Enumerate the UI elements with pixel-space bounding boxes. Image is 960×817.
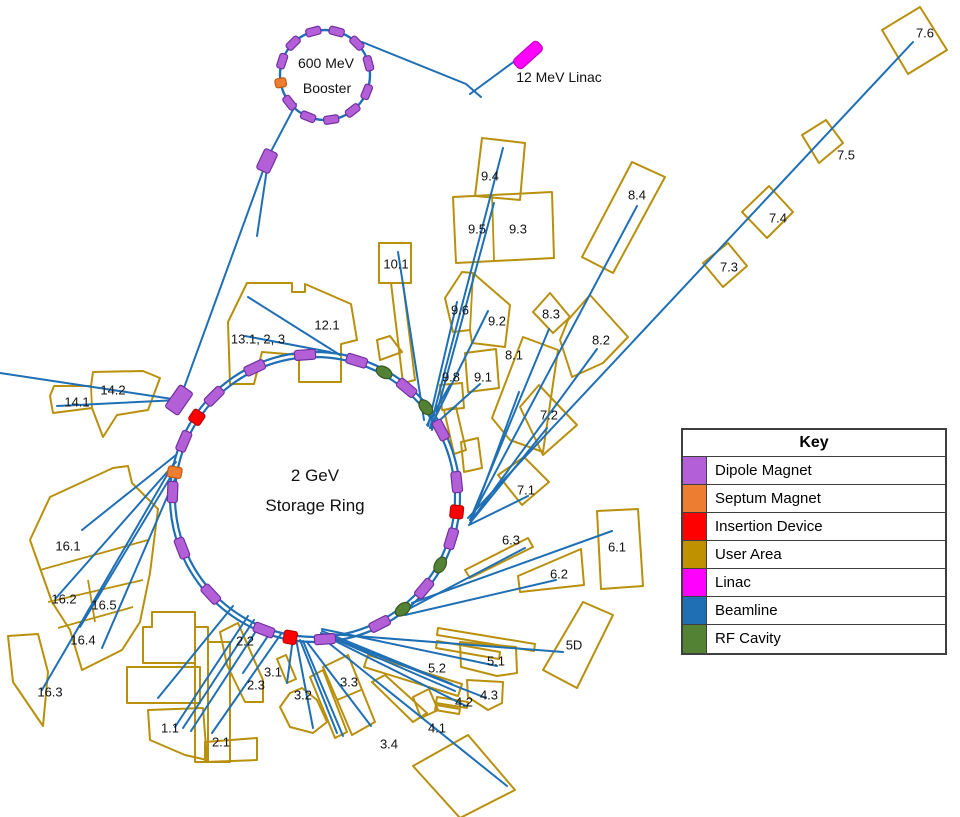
dipole-magnet (345, 353, 368, 369)
insertion-device (283, 630, 298, 645)
beamline-22 (320, 636, 507, 786)
beamline-2 (181, 104, 296, 396)
label-9-6: 9.6 (451, 303, 469, 318)
label-13-1-2-3: 13.1, 2, 3 (231, 332, 285, 347)
label-8-4: 8.4 (628, 188, 646, 203)
legend-row-linac: Linac (683, 569, 945, 597)
label-2-gev: 2 GeV (291, 466, 340, 485)
booster-dipole-magnet (285, 35, 301, 51)
legend-title: Key (683, 430, 945, 457)
dipole-magnet (256, 148, 278, 174)
legend-label: Dipole Magnet (707, 457, 812, 484)
dipole-magnet (174, 536, 191, 559)
rf-cavity (393, 600, 413, 619)
legend-label: User Area (707, 541, 782, 568)
legend-label: Insertion Device (707, 513, 823, 540)
label-3-4: 3.4 (380, 737, 398, 752)
linac (512, 40, 544, 70)
label-5-1: 5.1 (487, 654, 505, 669)
label-16-2: 16.2 (51, 592, 76, 607)
label-2-2: 2.2 (236, 634, 254, 649)
building-1-1-mid (127, 667, 200, 703)
booster-septum-magnet (274, 77, 286, 88)
dipole-magnet (451, 471, 463, 493)
legend: Key Dipole MagnetSeptum MagnetInsertion … (681, 428, 947, 655)
label-6-1: 6.1 (608, 540, 626, 555)
synchrotron-facility-diagram: 7.67.57.47.38.48.38.28.19.49.59.39.69.29… (0, 0, 960, 817)
label-storage-ring: Storage Ring (265, 496, 364, 515)
building-1-1-top (143, 612, 195, 663)
legend-rows: Dipole MagnetSeptum MagnetInsertion Devi… (683, 457, 945, 653)
legend-row-rf-cavity: RF Cavity (683, 625, 945, 653)
label-6-2: 6.2 (550, 567, 568, 582)
label-16-3: 16.3 (37, 685, 62, 700)
septum-magnet (167, 466, 183, 479)
booster-dipole-magnet (276, 53, 288, 70)
beamline-0 (362, 42, 481, 97)
building-8-4 (582, 162, 665, 273)
booster-dipole-magnet (349, 35, 365, 51)
label-16-4: 16.4 (70, 633, 95, 648)
dipole-magnet (167, 481, 178, 502)
label-8-3: 8.3 (542, 307, 560, 322)
label-9-2: 9.2 (488, 314, 506, 329)
legend-row-dipole-magnet: Dipole Magnet (683, 457, 945, 485)
beamline-7 (56, 462, 176, 598)
label-10-1: 10.1 (383, 257, 408, 272)
dipole-magnet (314, 633, 336, 644)
legend-label: Septum Magnet (707, 485, 821, 512)
label-3-2: 3.2 (294, 688, 312, 703)
dipole-magnet (294, 349, 316, 360)
label-7-6: 7.6 (916, 26, 934, 41)
label-4-2: 4.2 (455, 695, 473, 710)
label-9-5: 9.5 (468, 222, 486, 237)
label-4-1: 4.1 (428, 721, 446, 736)
label-9-3: 9.3 (509, 222, 527, 237)
dipole-magnet (368, 615, 391, 633)
label-7-4: 7.4 (769, 211, 787, 226)
label-7-2: 7.2 (540, 408, 558, 423)
label-1-1: 1.1 (161, 721, 179, 736)
booster-dipole-magnet (282, 94, 298, 111)
legend-swatch-dipole-magnet (683, 457, 707, 484)
label-16-5: 16.5 (91, 598, 116, 613)
label-8-2: 8.2 (592, 333, 610, 348)
beamline-37 (470, 428, 547, 523)
label-9-8: 9.8 (442, 370, 460, 385)
insertion-device (450, 505, 464, 519)
building-strip-1 (437, 628, 535, 651)
legend-row-insertion-device: Insertion Device (683, 513, 945, 541)
booster-dipole-magnet (363, 55, 375, 72)
label-2-3: 2.3 (247, 678, 265, 693)
label-booster: Booster (303, 80, 352, 96)
dipole-magnet (200, 583, 222, 605)
label-2-1: 2.1 (212, 735, 230, 750)
dipole-magnet (243, 359, 266, 377)
dipole-magnet (175, 430, 192, 453)
legend-swatch-linac (683, 569, 707, 596)
booster-dipole-magnet (323, 115, 339, 125)
legend-swatch-septum-magnet (683, 485, 707, 512)
legend-row-beamline: Beamline (683, 597, 945, 625)
booster-dipole-magnet (344, 103, 361, 119)
legend-label: RF Cavity (707, 625, 781, 653)
legend-row-user-area: User Area (683, 541, 945, 569)
label-7-5: 7.5 (837, 148, 855, 163)
label-7-1: 7.1 (517, 483, 535, 498)
label-3-3: 3.3 (340, 675, 358, 690)
label-8-1: 8.1 (505, 348, 523, 363)
building-16-3 (8, 634, 48, 726)
dipole-magnet (252, 622, 275, 639)
legend-label: Linac (707, 569, 751, 596)
label-5d: 5D (566, 638, 583, 653)
label-12-mev-linac: 12 MeV Linac (516, 69, 602, 85)
label-600-mev: 600 MeV (298, 55, 355, 71)
label-9-4: 9.4 (481, 169, 499, 184)
label-6-3: 6.3 (502, 533, 520, 548)
label-16-1: 16.1 (55, 539, 80, 554)
legend-swatch-insertion-device (683, 513, 707, 540)
label-5-2: 5.2 (428, 661, 446, 676)
label-12-1: 12.1 (314, 318, 339, 333)
legend-swatch-user-area (683, 541, 707, 568)
label-9-1: 9.1 (474, 370, 492, 385)
label-4-3: 4.3 (480, 688, 498, 703)
dipole-magnet (443, 527, 459, 550)
label-14-1: 14.1 (64, 395, 89, 410)
booster-dipole-magnet (328, 26, 345, 38)
legend-swatch-rf-cavity (683, 625, 707, 653)
legend-swatch-beamline (683, 597, 707, 624)
booster-dipole-magnet (300, 110, 317, 123)
legend-row-septum-magnet: Septum Magnet (683, 485, 945, 513)
label-7-3: 7.3 (720, 260, 738, 275)
dipole-magnet (203, 385, 225, 407)
building-big-rect (413, 735, 515, 817)
legend-label: Beamline (707, 597, 778, 624)
facility-map-page: 7.67.57.47.38.48.38.28.19.49.59.39.69.29… (0, 0, 960, 817)
beamline-29 (403, 548, 525, 612)
booster-dipole-magnet (360, 83, 373, 100)
beamline-39 (430, 148, 503, 428)
label-3-1: 3.1 (264, 665, 282, 680)
label-14-2: 14.2 (100, 383, 125, 398)
dipole-magnet (165, 384, 194, 415)
booster-dipole-magnet (305, 26, 322, 38)
